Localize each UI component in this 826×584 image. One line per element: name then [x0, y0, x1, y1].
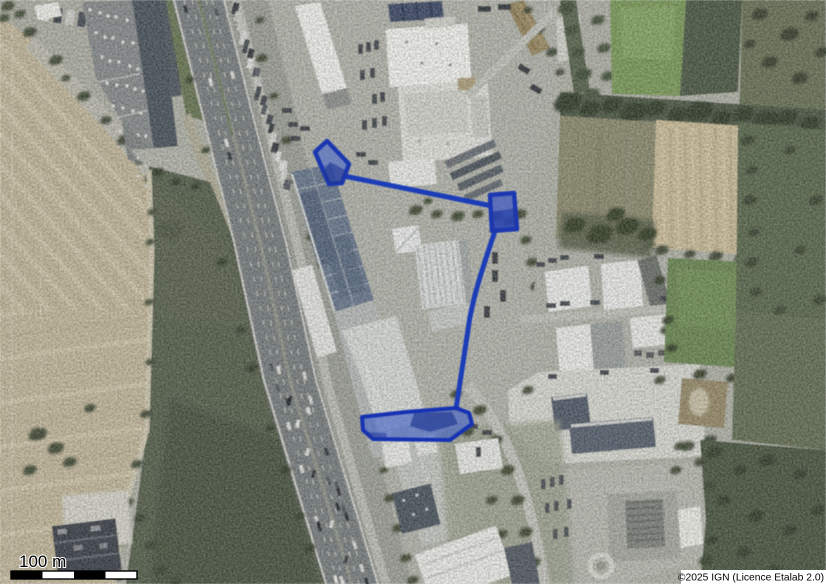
svg-text:100 m: 100 m [19, 552, 66, 571]
svg-text:©2025 IGN (Licence Etalab 2.0): ©2025 IGN (Licence Etalab 2.0) [678, 573, 824, 584]
